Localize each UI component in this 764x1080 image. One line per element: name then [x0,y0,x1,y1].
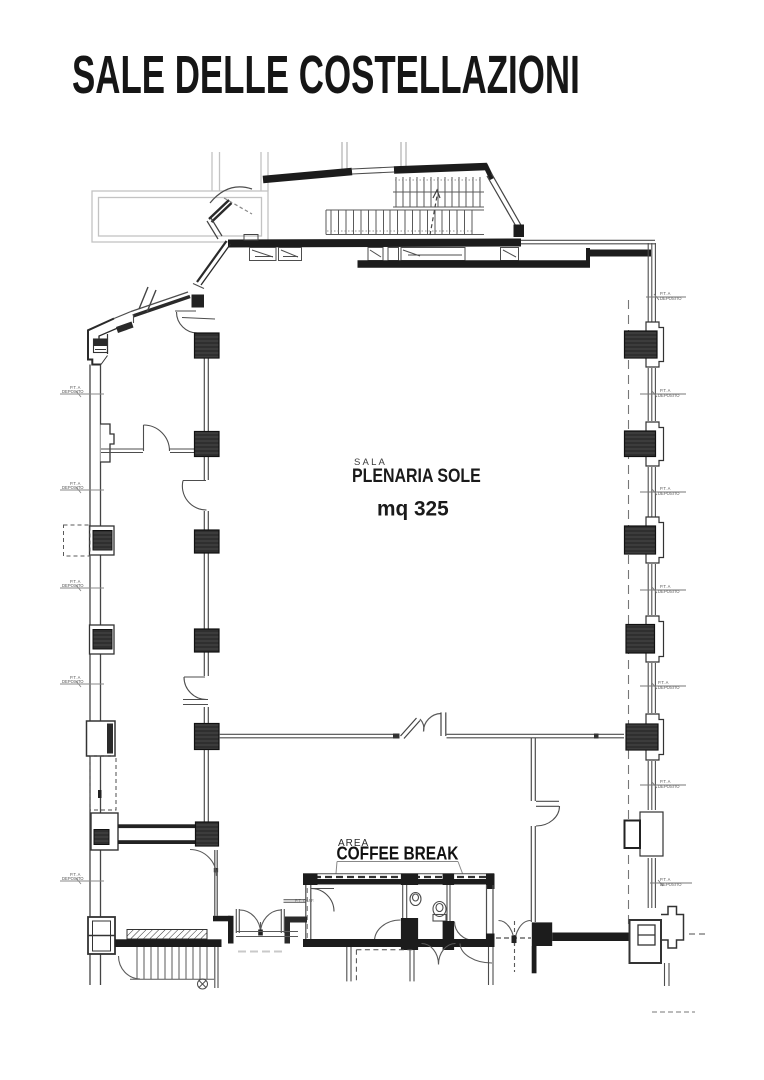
svg-text:DEPOSITO: DEPOSITO [62,583,84,588]
svg-text:COFFEE BREAK: COFFEE BREAK [337,843,460,864]
svg-text:DEPOSITO: DEPOSITO [660,882,682,887]
svg-text:DEPOSITO: DEPOSITO [62,485,84,490]
svg-text:DEPOSITO: DEPOSITO [658,589,680,594]
svg-text:DEPOSITO: DEPOSITO [658,685,680,690]
svg-text:DEPOSITO: DEPOSITO [62,389,84,394]
svg-text:DEPOSITO: DEPOSITO [658,491,680,496]
svg-text:DEPOSITO: DEPOSITO [62,679,84,684]
svg-text:DEPOSITO: DEPOSITO [658,393,680,398]
svg-text:PLENARIA SOLE: PLENARIA SOLE [352,465,481,487]
svg-text:DEPOSITO: DEPOSITO [62,876,84,881]
svg-text:DEPOSITO: DEPOSITO [660,296,682,301]
svg-text:DEPOSITO: DEPOSITO [658,784,680,789]
svg-text:mq 325: mq 325 [377,498,449,521]
